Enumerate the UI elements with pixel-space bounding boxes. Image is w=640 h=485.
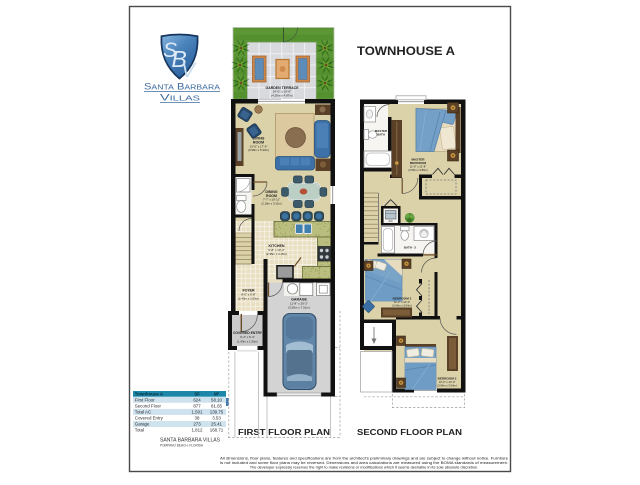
svg-text:Covered Entry: Covered Entry xyxy=(135,416,164,421)
svg-text:25.41: 25.41 xyxy=(211,422,223,427)
svg-text:Garage: Garage xyxy=(135,422,150,427)
svg-text:Total AC: Total AC xyxy=(135,409,151,414)
svg-text:V: V xyxy=(181,59,197,82)
svg-text:624: 624 xyxy=(193,397,201,402)
svg-text:M²: M² xyxy=(214,392,220,397)
svg-text:10'-0" x 10'-0": 10'-0" x 10'-0" xyxy=(439,380,456,384)
svg-text:1,812: 1,812 xyxy=(192,428,204,433)
svg-text:38: 38 xyxy=(195,416,200,421)
svg-text:BATH: BATH xyxy=(377,132,385,136)
svg-text:11'-2" x 10'-0": 11'-2" x 10'-0" xyxy=(394,300,410,304)
svg-text:TOWNHOUSE A: TOWNHOUSE A xyxy=(357,44,455,58)
svg-text:Total: Total xyxy=(135,428,144,433)
svg-text:SECOND FLOOR PLAN: SECOND FLOOR PLAN xyxy=(357,428,462,437)
svg-text:877: 877 xyxy=(193,403,201,408)
svg-text:58.10: 58.10 xyxy=(211,397,223,402)
svg-text:Townhouse A: Townhouse A xyxy=(135,392,164,397)
svg-text:(4.26m x 4.87m): (4.26m x 4.87m) xyxy=(271,93,293,97)
svg-text:BEDROOM 3: BEDROOM 3 xyxy=(438,377,457,381)
svg-text:The developer expressly reserv: The developer expressly reserves the rig… xyxy=(250,465,479,470)
svg-text:(2.43m x 2.03m): (2.43m x 2.03m) xyxy=(238,296,259,300)
svg-text:BEDROOM: BEDROOM xyxy=(410,161,427,165)
svg-text:273: 273 xyxy=(193,422,201,427)
svg-text:3.53: 3.53 xyxy=(212,416,221,421)
svg-text:First Floor: First Floor xyxy=(135,397,155,402)
svg-text:Second Floor: Second Floor xyxy=(135,403,162,408)
svg-text:(2.95m x 3.15m): (2.95m x 3.15m) xyxy=(266,252,287,256)
svg-text:SF: SF xyxy=(194,392,200,397)
svg-text:POMPANO BEACH, FLORIDA: POMPANO BEACH, FLORIDA xyxy=(160,444,204,448)
svg-text:139.75: 139.75 xyxy=(210,409,224,414)
svg-text:(3.55m x 7.01m): (3.55m x 7.01m) xyxy=(288,305,310,309)
svg-text:(1.93m x 1.93m): (1.93m x 1.93m) xyxy=(237,339,258,343)
svg-text:11'-8" x 12'-8": 11'-8" x 12'-8" xyxy=(410,165,426,169)
svg-text:(2.18m x 3.32m): (2.18m x 3.32m) xyxy=(261,201,281,205)
svg-text:A/C: A/C xyxy=(389,219,393,223)
svg-text:VILLAS: VILLAS xyxy=(160,93,200,104)
svg-text:(3.40m x 3.04m): (3.40m x 3.04m) xyxy=(392,304,412,308)
svg-text:(3.04m x 3.04m): (3.04m x 3.04m) xyxy=(437,384,457,388)
svg-text:SANTA BARBARA: SANTA BARBARA xyxy=(144,82,220,93)
svg-text:1,501: 1,501 xyxy=(192,409,204,414)
svg-text:81.65: 81.65 xyxy=(211,403,223,408)
svg-text:FIRST FLOOR PLAN: FIRST FLOOR PLAN xyxy=(238,428,330,437)
svg-text:BATH - 2: BATH - 2 xyxy=(404,246,416,250)
svg-text:(3.96m x 5.33m): (3.96m x 5.33m) xyxy=(248,148,269,152)
svg-text:(3.55m x 3.86m): (3.55m x 3.86m) xyxy=(408,168,428,172)
svg-text:BEDROOM 2: BEDROOM 2 xyxy=(393,297,412,301)
svg-text:168.71: 168.71 xyxy=(210,428,224,433)
